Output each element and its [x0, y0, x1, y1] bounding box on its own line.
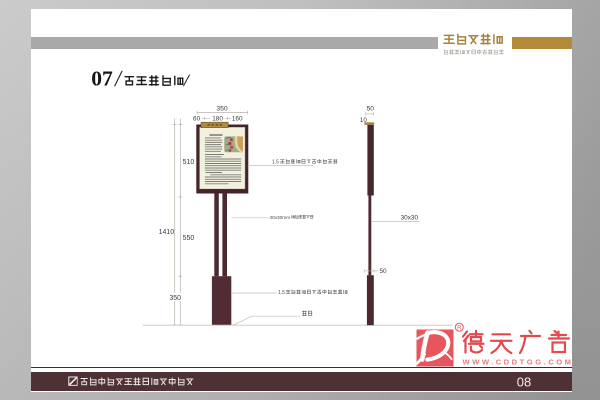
svg-text:50: 50: [367, 105, 375, 112]
svg-text:550: 550: [183, 235, 195, 242]
svg-text:1.5: 1.5: [278, 290, 285, 296]
svg-text:510: 510: [183, 159, 195, 166]
svg-text:180: 180: [212, 116, 223, 123]
svg-text:1410: 1410: [159, 229, 175, 236]
svg-text:30x30: 30x30: [401, 214, 419, 221]
svg-text:350: 350: [216, 106, 228, 113]
svg-text:350: 350: [169, 295, 181, 302]
svg-text:1.5: 1.5: [272, 160, 279, 166]
svg-text:160: 160: [232, 116, 243, 123]
svg-text:30x30mm: 30x30mm: [270, 215, 291, 220]
svg-text:07: 07: [91, 67, 113, 91]
svg-text:08: 08: [517, 375, 531, 390]
svg-text:WWW.CDDTGG.COM: WWW.CDDTGG.COM: [463, 357, 574, 366]
svg-text:60: 60: [193, 116, 201, 123]
svg-text:50: 50: [380, 268, 388, 275]
svg-text:R: R: [457, 326, 462, 332]
